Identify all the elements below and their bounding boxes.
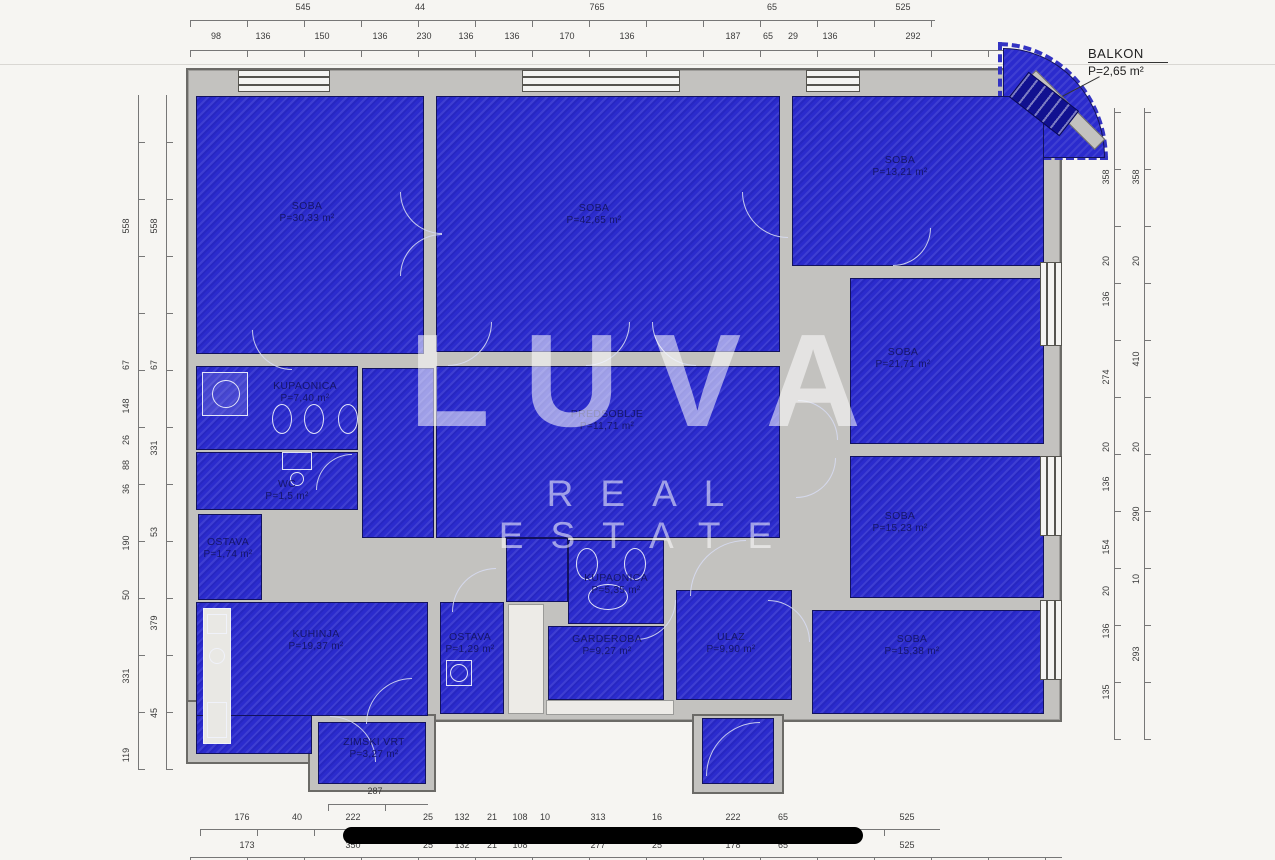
dimension-value: 287: [355, 786, 395, 796]
room-name: GARDEROBA: [547, 633, 667, 646]
room-label-ostava-2: OSTAVAP=1,29 m²: [410, 631, 530, 657]
room-name: OSTAVA: [410, 631, 530, 644]
dimension-value: 150: [302, 31, 342, 41]
dimension-value: 36: [121, 469, 131, 509]
room-label-soba-1: SOBAP=30,33 m²: [247, 200, 367, 226]
room-predsoblje: [436, 366, 780, 538]
redaction-bar: [343, 827, 863, 844]
dimension-line: [166, 95, 173, 770]
room-label-soba-4: SOBAP=21,71 m²: [843, 346, 963, 372]
dimension-value: 293: [1131, 634, 1141, 674]
dimension-value: 187: [713, 31, 753, 41]
dimension-value: 545: [283, 2, 323, 12]
dimension-line: [190, 50, 1005, 57]
dimension-line: [1114, 108, 1121, 740]
page-divider-line: [0, 64, 1275, 65]
room-label-soba-5: SOBAP=15,23 m²: [840, 510, 960, 536]
dimension-value: 44: [400, 2, 440, 12]
fixture: [282, 452, 312, 470]
room-area-value: P=42,65 m²: [534, 215, 654, 228]
dimension-value: 292: [893, 31, 933, 41]
dimension-value: 190: [121, 523, 131, 563]
room-ostava-2: [440, 602, 504, 714]
dimension-value: 558: [121, 206, 131, 246]
room-name: PREDSOBLJE: [547, 408, 667, 421]
dimension-value: 20: [1101, 571, 1111, 611]
room-name: KUPAONICA: [556, 572, 676, 585]
dimension-value: 136: [360, 31, 400, 41]
room-area-value: P=3,27 m²: [314, 749, 434, 762]
dimension-value: 65: [763, 812, 803, 822]
dimension-value: 290: [1131, 494, 1141, 534]
dimension-value: 136: [1101, 464, 1111, 504]
dimension-value: 170: [547, 31, 587, 41]
room-name: OSTAVA: [168, 536, 288, 549]
dimension-line: [328, 804, 428, 811]
balcony-name: BALKON: [1088, 46, 1168, 61]
dimension-value: 67: [121, 345, 131, 385]
room-name: KUPAONICA: [245, 380, 365, 393]
dimension-value: 53: [149, 512, 159, 552]
fixture: [207, 614, 227, 634]
fixture: [209, 648, 225, 664]
dimension-value: 67: [149, 345, 159, 385]
room-name: KUHINJA: [256, 628, 376, 641]
dimension-value: 525: [883, 2, 923, 12]
dimension-line: [190, 20, 935, 27]
room-area-value: P=30,33 m²: [247, 213, 367, 226]
fixture: [450, 664, 468, 682]
room-area-value: P=9,27 m²: [547, 646, 667, 659]
window: [1040, 262, 1062, 346]
floorplan-canvas: BALKON P=2,65 m² SOBAP=30,33 m²SOBAP=42,…: [0, 0, 1275, 860]
floor-area: [508, 604, 544, 714]
dimension-value: 136: [243, 31, 283, 41]
room-area-value: P=5,35 m²: [556, 585, 676, 598]
dimension-value: 135: [1101, 672, 1111, 712]
room-area-value: P=11,71 m²: [547, 421, 667, 434]
dimension-line: [138, 95, 145, 770]
dimension-value: 558: [149, 206, 159, 246]
fixture: [272, 404, 292, 434]
room-label-zimski-vrt: ZIMSKI VRTP=3,27 m²: [314, 736, 434, 762]
dimension-value: 20: [1131, 241, 1141, 281]
dimension-value: 136: [607, 31, 647, 41]
dimension-value: 136: [810, 31, 850, 41]
room-label-wc: WCP=1,5 m²: [227, 478, 347, 504]
dimension-value: 20: [1101, 241, 1111, 281]
dimension-value: 222: [713, 812, 753, 822]
dimension-value: 525: [887, 812, 927, 822]
dimension-value: 20: [1101, 427, 1111, 467]
window: [1040, 600, 1062, 680]
room-area-value: P=13,21 m²: [840, 167, 960, 180]
room-area-value: P=9,90 m²: [671, 644, 791, 657]
dimension-value: 230: [404, 31, 444, 41]
dimension-value: 136: [1101, 611, 1111, 651]
dimension-value: 10: [525, 812, 565, 822]
dimension-value: 313: [578, 812, 618, 822]
dimension-value: 136: [492, 31, 532, 41]
dimension-value: 65: [752, 2, 792, 12]
room-area-value: P=1,74 m²: [168, 549, 288, 562]
balcony-label: BALKON P=2,65 m²: [1088, 46, 1168, 78]
dimension-value: 358: [1101, 157, 1111, 197]
dimension-value: 29: [773, 31, 813, 41]
room-area-value: P=15,23 m²: [840, 523, 960, 536]
dimension-value: 10: [1131, 559, 1141, 599]
room-label-soba-2: SOBAP=42,65 m²: [534, 202, 654, 228]
window: [1040, 456, 1062, 536]
room-area-value: P=15,38 m²: [852, 646, 972, 659]
dimension-value: 40: [277, 812, 317, 822]
room-name: SOBA: [843, 346, 963, 359]
fixture: [212, 380, 240, 408]
room-name: SOBA: [852, 633, 972, 646]
dimension-value: 98: [196, 31, 236, 41]
room-name: SOBA: [840, 510, 960, 523]
dimension-value: 525: [887, 840, 927, 850]
room-name: WC: [227, 478, 347, 491]
room-label-predsoblje: PREDSOBLJEP=11,71 m²: [547, 408, 667, 434]
dimension-value: 410: [1131, 339, 1141, 379]
fixture: [304, 404, 324, 434]
dimension-value: 274: [1101, 357, 1111, 397]
room-area-value: P=19,37 m²: [256, 641, 376, 654]
room-label-ostava-1: OSTAVAP=1,74 m²: [168, 536, 288, 562]
room-name: SOBA: [247, 200, 367, 213]
room-area-value: P=1,29 m²: [410, 644, 530, 657]
dimension-value: 119: [121, 735, 131, 775]
room-soba-6: [812, 610, 1044, 714]
dimension-value: 20: [1131, 427, 1141, 467]
room-area-value: P=7,40 m²: [245, 393, 365, 406]
room-label-soba-3: SOBAP=13,21 m²: [840, 154, 960, 180]
dimension-value: 45: [149, 693, 159, 733]
dimension-value: 379: [149, 603, 159, 643]
dimension-value: 136: [1101, 279, 1111, 319]
window: [522, 70, 680, 92]
dimension-value: 765: [577, 2, 617, 12]
room-label-kupaonica-1: KUPAONICAP=7,40 m²: [245, 380, 365, 406]
dimension-value: 173: [227, 840, 267, 850]
dimension-value: 16: [637, 812, 677, 822]
room-name: SOBA: [840, 154, 960, 167]
dimension-value: 176: [222, 812, 262, 822]
room-area: [362, 368, 434, 538]
room-label-soba-6: SOBAP=15,38 m²: [852, 633, 972, 659]
fixture: [338, 404, 358, 434]
room-label-kuhinja: KUHINJAP=19,37 m²: [256, 628, 376, 654]
dimension-value: 50: [121, 575, 131, 615]
dimension-value: 136: [446, 31, 486, 41]
window: [806, 70, 860, 92]
dimension-value: 331: [149, 428, 159, 468]
dimension-line: [1144, 108, 1151, 740]
room-label-garderoba: GARDEROBAP=9,27 m²: [547, 633, 667, 659]
room-area-value: P=21,71 m²: [843, 359, 963, 372]
floor-area: [546, 700, 674, 715]
room-name: ZIMSKI VRT: [314, 736, 434, 749]
dimension-value: 331: [121, 656, 131, 696]
room-name: SOBA: [534, 202, 654, 215]
fixture: [207, 702, 227, 738]
room-area-value: P=1,5 m²: [227, 491, 347, 504]
dimension-value: 358: [1131, 157, 1141, 197]
dimension-value: 222: [333, 812, 373, 822]
window: [238, 70, 330, 92]
room-label-kupaonica-2: KUPAONICAP=5,35 m²: [556, 572, 676, 598]
dimension-value: 154: [1101, 527, 1111, 567]
room-label-ulaz: ULAZP=9,90 m²: [671, 631, 791, 657]
room-name: ULAZ: [671, 631, 791, 644]
balcony-area-value: P=2,65 m²: [1088, 62, 1168, 78]
